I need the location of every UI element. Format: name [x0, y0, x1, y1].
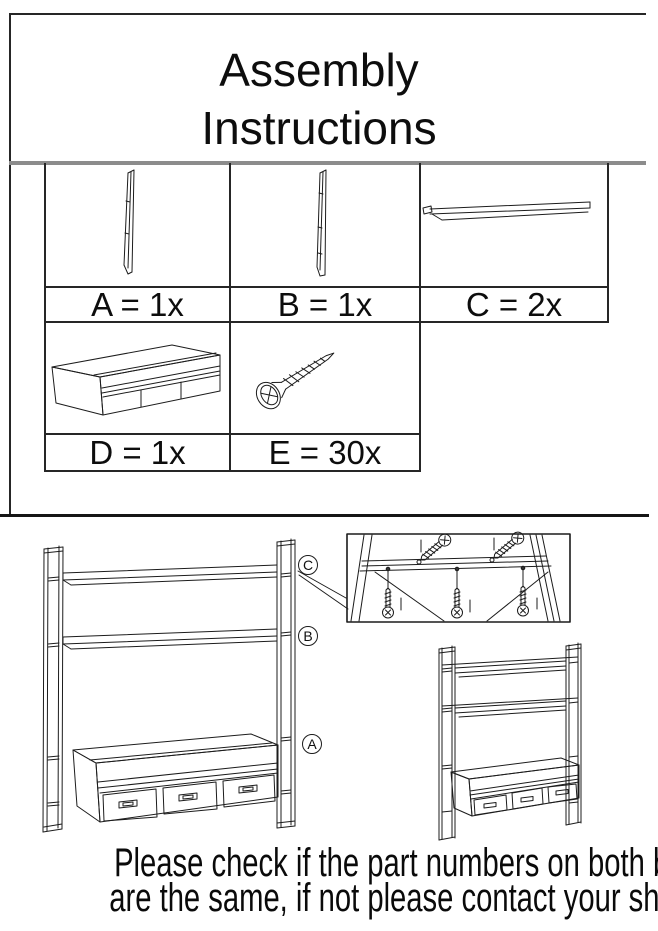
- title-line-1: Assembly: [9, 41, 629, 99]
- screw-icon: [230, 323, 420, 433]
- page-top-border: [9, 13, 646, 15]
- detail-tick-marks: [401, 538, 537, 612]
- detail-screw-bottom-3: [518, 586, 529, 616]
- side-panel-b-icon: [230, 165, 420, 285]
- assembly-instructions-page: Assembly Instructions: [0, 0, 658, 931]
- main-middle-shelf: [63, 629, 277, 649]
- main-top-shelf: [63, 565, 277, 585]
- part-c-label: C = 2x: [421, 288, 607, 321]
- side-panel-a-icon: [44, 165, 230, 285]
- footer-note: Please check if the part numbers on both…: [0, 846, 658, 916]
- callout-b-letter: B: [303, 628, 312, 644]
- assembled-drawer-cabinet: [451, 758, 579, 816]
- assembled-left-frame: [439, 646, 455, 840]
- drawer-cabinet-icon: [44, 323, 230, 433]
- detail-screw-top-1: [417, 532, 453, 565]
- page-title: Assembly Instructions: [9, 41, 629, 157]
- assembled-unit: [439, 643, 581, 840]
- callout-a: A: [303, 735, 322, 754]
- screw-detail-inset: [347, 530, 570, 622]
- detail-screw-bottom-2: [452, 588, 463, 618]
- assembled-shelves: [442, 657, 578, 717]
- callout-c-letter: C: [303, 557, 313, 573]
- detail-screw-bottom-1: [383, 588, 394, 618]
- callout-c-leader-lines: [298, 571, 348, 609]
- part-a-label: A = 1x: [46, 288, 229, 321]
- callout-a-letter: A: [307, 736, 317, 752]
- part-d-label: D = 1x: [46, 435, 229, 470]
- footer-line-2: are the same, if not please contact your…: [0, 881, 658, 916]
- main-drawer-cabinet: [73, 734, 278, 822]
- shelf-plank-icon: [420, 165, 609, 285]
- part-b-label: B = 1x: [231, 288, 419, 321]
- main-right-frame: [277, 539, 295, 828]
- main-left-frame: [43, 546, 63, 832]
- callout-b: B: [299, 627, 318, 646]
- callout-c: C: [299, 556, 318, 575]
- part-e-label: E = 30x: [231, 435, 419, 470]
- title-line-2: Instructions: [9, 99, 629, 157]
